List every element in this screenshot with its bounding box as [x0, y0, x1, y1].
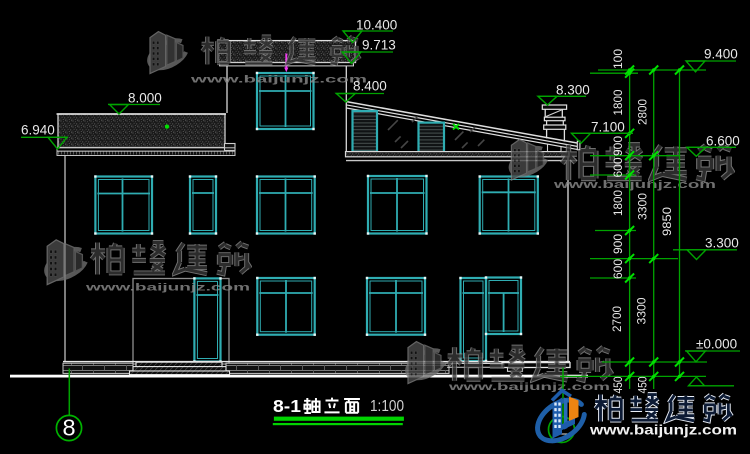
svg-text:1800: 1800 [611, 89, 625, 115]
svg-text:9850: 9850 [660, 207, 674, 236]
svg-text:2800: 2800 [636, 99, 650, 125]
svg-text:450: 450 [636, 376, 650, 393]
svg-text:8.300: 8.300 [556, 83, 590, 98]
svg-text:600: 600 [611, 259, 625, 279]
svg-text:www.baijunjz.com: www.baijunjz.com [447, 381, 610, 393]
svg-text:9.400: 9.400 [704, 47, 738, 62]
svg-text:www.baijunjz.com: www.baijunjz.com [552, 179, 716, 191]
svg-text:900: 900 [611, 136, 625, 156]
svg-text:www.baijunjz.com: www.baijunjz.com [589, 423, 737, 438]
svg-text:8.400: 8.400 [353, 79, 387, 94]
svg-text:3300: 3300 [635, 297, 649, 324]
svg-text:8: 8 [62, 415, 75, 441]
svg-text:6.600: 6.600 [706, 134, 740, 149]
svg-text:8-1: 8-1 [273, 396, 301, 416]
svg-text:1:100: 1:100 [370, 398, 404, 415]
svg-text:www.baijunjz.com: www.baijunjz.com [189, 74, 367, 86]
svg-text:±0.000: ±0.000 [696, 337, 737, 352]
svg-text:2700: 2700 [610, 306, 624, 332]
svg-text:600: 600 [611, 157, 625, 177]
svg-text:www.baijunjz.com: www.baijunjz.com [84, 282, 250, 294]
svg-text:10.400: 10.400 [356, 18, 397, 33]
svg-text:3.300: 3.300 [705, 236, 739, 251]
svg-text:9.713: 9.713 [362, 38, 396, 53]
svg-text:1800: 1800 [611, 190, 625, 216]
svg-text:450: 450 [611, 376, 625, 393]
svg-text:8.000: 8.000 [128, 91, 162, 106]
svg-text:7.100: 7.100 [591, 120, 625, 135]
svg-text:3300: 3300 [636, 193, 650, 220]
svg-text:100: 100 [611, 49, 625, 69]
svg-text:6.940: 6.940 [21, 123, 55, 138]
svg-text:900: 900 [611, 234, 625, 254]
